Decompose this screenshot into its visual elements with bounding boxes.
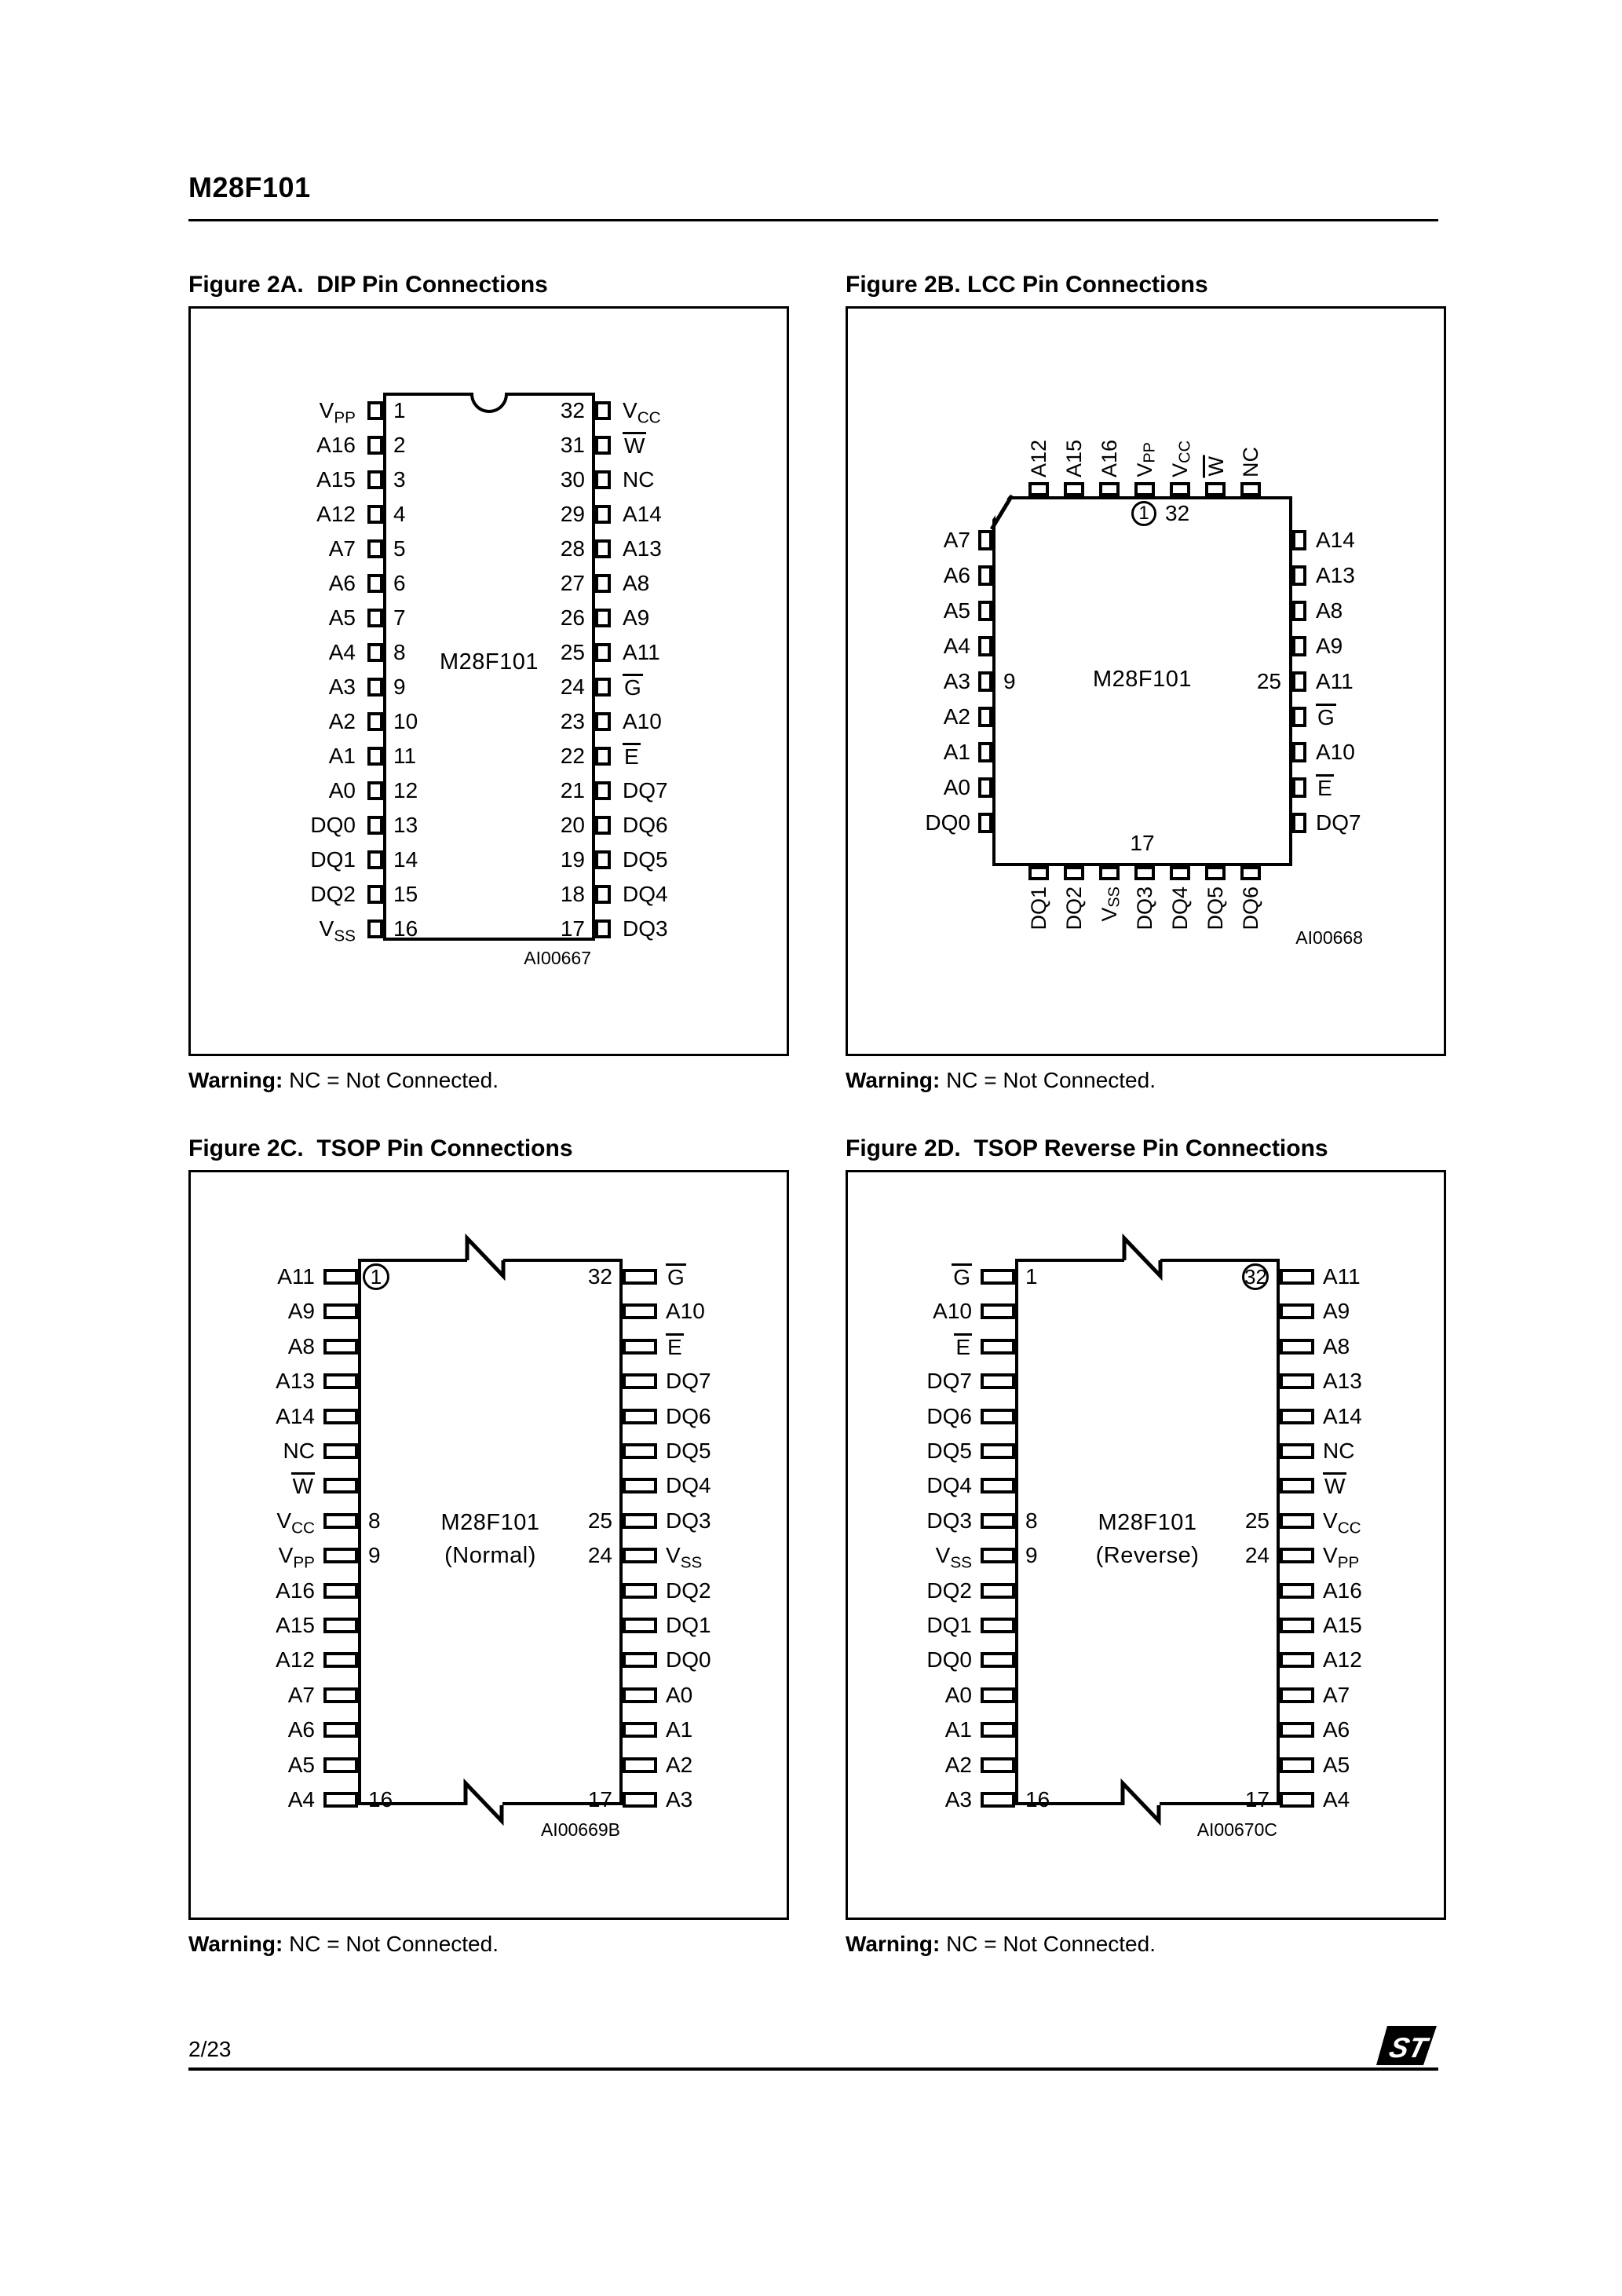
pin-rect [595, 850, 611, 869]
figure-2d-frame: G1A10EDQ7DQ6DQ5DQ4DQ38VSS9DQ2DQ1DQ0A0A1A… [846, 1170, 1446, 1920]
pin-rect [978, 777, 992, 798]
pin-rect [1292, 813, 1306, 833]
pin-number: 6 [393, 570, 406, 597]
pin-label: A10 [623, 708, 662, 735]
pin-label: W [191, 1472, 315, 1499]
pin-label: A11 [1323, 1263, 1361, 1290]
pin-label: DQ5 [1203, 887, 1228, 930]
pin-number: 26 [489, 605, 585, 631]
pin-label: DQ3 [666, 1508, 711, 1534]
pin-label: A7 [191, 1682, 315, 1709]
pin-rect [367, 747, 383, 766]
pin-label: VSS [191, 916, 356, 942]
pin-label: A16 [191, 432, 356, 459]
pin-label: A0 [666, 1682, 692, 1709]
pin-rect [981, 1373, 1015, 1389]
pin-number: 15 [393, 881, 418, 908]
pin-rect [367, 436, 383, 455]
pin-label: DQ6 [848, 1403, 972, 1430]
pin-label: DQ2 [1061, 887, 1087, 930]
pin-label: A15 [191, 1612, 315, 1639]
pin-label: DQ1 [191, 846, 356, 873]
pin-label: A7 [848, 527, 970, 554]
pin-label: A16 [191, 1578, 315, 1604]
pin-label: A7 [1323, 1682, 1350, 1709]
pin-label: A10 [666, 1298, 705, 1325]
pin-label: A6 [848, 562, 970, 589]
pin-rect [978, 601, 992, 621]
pin-label: DQ6 [1238, 887, 1263, 930]
pin-label: A14 [191, 1403, 315, 1430]
datasheet-page: M28F101 Figure 2A. DIP Pin Connections V… [0, 0, 1622, 2296]
pin-label: DQ4 [666, 1472, 711, 1499]
pin-rect [367, 678, 383, 696]
pin-label: DQ6 [623, 812, 668, 839]
warning-note: Warning: NC = Not Connected. [188, 1068, 499, 1093]
pin-rect [367, 712, 383, 731]
break-mark-icon [1115, 1232, 1178, 1295]
pin-rect [323, 1618, 358, 1633]
pin-number: 16 [368, 1786, 393, 1813]
pin-number: 32 [489, 397, 585, 424]
pin-label: VCC [623, 397, 661, 424]
pin-number: 20 [489, 812, 585, 839]
pin-number: 18 [489, 881, 585, 908]
pin-rect [1170, 482, 1190, 496]
pin-label: DQ0 [848, 1647, 972, 1673]
pin-rect [1134, 482, 1155, 496]
pin-label: A4 [191, 639, 356, 666]
pin-rect [367, 609, 383, 627]
pin-label: VPP [191, 397, 356, 424]
pin-rect [1280, 1757, 1314, 1773]
pin-rect [623, 1339, 657, 1355]
pin-label: A5 [191, 605, 356, 631]
pin-rect [323, 1687, 358, 1703]
pin-rect [623, 1269, 657, 1285]
pin-rect [595, 436, 611, 455]
pin-rect [981, 1618, 1015, 1633]
pin-rect [323, 1513, 358, 1529]
pin-rect [595, 781, 611, 800]
pin-rect [1280, 1409, 1314, 1424]
pin-rect [595, 885, 611, 904]
pin-rect [978, 707, 992, 727]
pin-label: DQ4 [848, 1472, 972, 1499]
pin-label: A11 [191, 1263, 315, 1290]
pin-rect [1292, 671, 1306, 692]
pin-label: A12 [191, 501, 356, 528]
pin-rect [595, 712, 611, 731]
pin-rect [1064, 482, 1084, 496]
pin-rect [623, 1618, 657, 1633]
pin-rect [1292, 742, 1306, 762]
pin-rect [981, 1757, 1015, 1773]
pin-rect [1240, 482, 1261, 496]
pin-rect [981, 1478, 1015, 1493]
pin-label: A1 [848, 1717, 972, 1743]
pin-label: A13 [1323, 1368, 1362, 1395]
pin-number: 27 [489, 570, 585, 597]
pin-number: 9 [393, 674, 406, 700]
pin-number: 23 [489, 708, 585, 735]
pin-label: A7 [191, 536, 356, 562]
pin-rect [367, 505, 383, 524]
pin-rect [595, 747, 611, 766]
pin-rect [1134, 866, 1155, 880]
pin-rect [1280, 1443, 1314, 1459]
pin-rect [1099, 866, 1120, 880]
pin-rect [981, 1269, 1015, 1285]
pin-label: DQ0 [848, 810, 970, 836]
pin-label: A3 [666, 1786, 692, 1813]
pin-rect [595, 470, 611, 489]
pin-rect [1280, 1792, 1314, 1808]
figure-2d: Figure 2D. TSOP Reverse Pin Connections … [846, 1135, 1446, 1968]
pin-label: DQ7 [666, 1368, 711, 1395]
pin-label: A8 [1316, 598, 1343, 624]
pin-rect [367, 850, 383, 869]
pin-rect [981, 1513, 1015, 1529]
pin-rect [981, 1792, 1015, 1808]
pin-rect [595, 643, 611, 662]
pin-rect [367, 919, 383, 938]
pin-label: A14 [1316, 527, 1355, 554]
pin-rect [1170, 866, 1190, 880]
pin-number: 32 [534, 1263, 612, 1290]
warning-text: NC = Not Connected. [946, 1932, 1156, 1956]
pin-label: A2 [848, 704, 970, 730]
pin-label: DQ4 [623, 881, 668, 908]
pin-label: NC [1238, 447, 1263, 477]
pin-rect [1280, 1513, 1314, 1529]
pin-rect [323, 1409, 358, 1424]
pin-rect [1205, 482, 1226, 496]
figure-ref-code: AI00667 [434, 948, 591, 968]
pin1-indicator: 1 [363, 1263, 389, 1290]
chip-sublabel: (Reverse) [1015, 1541, 1280, 1570]
pin-rect [323, 1652, 358, 1668]
pin-rect [367, 885, 383, 904]
pin-label: A0 [848, 774, 970, 801]
pin-rect [623, 1548, 657, 1563]
pin-rect [978, 636, 992, 656]
pin-rect [1292, 565, 1306, 586]
figure-2b-frame: A12A15A16VPPVCCWNCDQ1DQ2VSSDQ3DQ4DQ5DQ6A… [846, 306, 1446, 1056]
pin-label: DQ2 [666, 1578, 711, 1604]
page-title: M28F101 [188, 171, 311, 204]
pin-label: A1 [848, 739, 970, 766]
pin-rect [623, 1722, 657, 1738]
pin-number: 31 [489, 432, 585, 459]
lcc-package-diagram: A12A15A16VPPVCCWNCDQ1DQ2VSSDQ3DQ4DQ5DQ6A… [848, 309, 1444, 1054]
pin-label: A0 [191, 777, 356, 804]
pin-label: VPP [1132, 442, 1162, 477]
break-mark-icon [458, 1232, 521, 1295]
pin-rect [981, 1548, 1015, 1563]
pin-rect [978, 813, 992, 833]
pin-label: G [848, 1263, 972, 1290]
pin-rect [323, 1373, 358, 1389]
pin-rect [1280, 1373, 1314, 1389]
figure-2d-title: Figure 2D. TSOP Reverse Pin Connections [846, 1135, 1328, 1162]
pin-label: DQ5 [666, 1438, 711, 1464]
figure-2a-frame: VPP1A162A153A124A75A66A57A48A39A210A111A… [188, 306, 789, 1056]
warning-note: Warning: NC = Not Connected. [846, 1932, 1156, 1957]
warning-text: NC = Not Connected. [946, 1068, 1156, 1092]
pin-rect [1240, 866, 1261, 880]
pin-label: A3 [848, 668, 970, 695]
chip-sublabel: (Normal) [358, 1541, 623, 1570]
pin-number: 30 [489, 466, 585, 493]
pin-label: DQ1 [666, 1612, 711, 1639]
pin-label: DQ1 [1026, 887, 1051, 930]
pin-rect [323, 1443, 358, 1459]
pin-number: 10 [393, 708, 418, 735]
pin-number: 21 [489, 777, 585, 804]
pin-rect [978, 565, 992, 586]
figure-2c-frame: A111A9A8A13A14NCWVCC8VPP9A16A15A12A7A6A5… [188, 1170, 789, 1920]
pin-label: A5 [848, 598, 970, 624]
pin-number: 4 [393, 501, 406, 528]
pin-rect [595, 505, 611, 524]
pin-rect [623, 1373, 657, 1389]
header-rule [188, 219, 1438, 221]
pin-rect [1280, 1583, 1314, 1599]
pin-rect [1028, 866, 1049, 880]
st-logo-icon: ST [1375, 2024, 1438, 2067]
pin-label: W [1203, 455, 1229, 477]
pin-label: G [1316, 704, 1336, 730]
pin-label: VSS [848, 1542, 972, 1569]
pin-label: VPP [1323, 1542, 1359, 1569]
warning-note: Warning: NC = Not Connected. [846, 1068, 1156, 1093]
pin-rect [981, 1652, 1015, 1668]
pin-rect [1028, 482, 1049, 496]
pin-rect [323, 1303, 358, 1319]
pin-number: 13 [393, 812, 418, 839]
pin-label: E [1316, 774, 1334, 801]
pin-rect [623, 1687, 657, 1703]
pin-label: G [623, 674, 643, 700]
pin-label: DQ3 [1132, 887, 1157, 930]
pin-rect [367, 816, 383, 835]
pin-number: 17 [992, 830, 1292, 857]
pin-label: A8 [191, 1333, 315, 1360]
pin-rect [595, 919, 611, 938]
pin-rect [623, 1303, 657, 1319]
pin-rect [323, 1339, 358, 1355]
pin1-indicator: 32 [1242, 1263, 1269, 1290]
pin-rect [1292, 530, 1306, 550]
pin-number: 17 [489, 916, 585, 942]
pin-rect [623, 1583, 657, 1599]
pin-number: 24 [489, 674, 585, 700]
pin-label: E [666, 1333, 684, 1360]
pin-label: NC [623, 466, 654, 493]
pin-number: 19 [489, 846, 585, 873]
pin-rect [981, 1409, 1015, 1424]
pin-rect [323, 1269, 358, 1285]
pin-rect [1280, 1303, 1314, 1319]
pin-label: DQ3 [623, 916, 668, 942]
pin-label: A6 [191, 570, 356, 597]
figure-2a-title: Figure 2A. DIP Pin Connections [188, 272, 548, 298]
pin-label: A3 [191, 674, 356, 700]
pin-rect [1292, 601, 1306, 621]
pin-label: VCC [1323, 1508, 1361, 1534]
pin-label: DQ2 [191, 881, 356, 908]
pin-label: E [623, 743, 641, 770]
warning-label: Warning: [188, 1932, 283, 1956]
pin-rect [981, 1687, 1015, 1703]
pin-rect [981, 1303, 1015, 1319]
figure-2b: Figure 2B. LCC Pin Connections A12A15A16… [846, 272, 1446, 1104]
pin-label: A14 [1323, 1403, 1362, 1430]
pin-label: A8 [1323, 1333, 1350, 1360]
pin-number: 5 [393, 536, 406, 562]
pin-rect [623, 1792, 657, 1808]
pin-label: A12 [1323, 1647, 1362, 1673]
pin-rect [595, 539, 611, 558]
pin-number: 2 [393, 432, 406, 459]
pin-rect [1280, 1687, 1314, 1703]
pin-label: A15 [1323, 1612, 1362, 1639]
warning-note: Warning: NC = Not Connected. [188, 1932, 499, 1957]
pin-rect [623, 1478, 657, 1493]
pin-label: A9 [1323, 1298, 1350, 1325]
pin-label: A4 [848, 633, 970, 660]
pin-rect [981, 1583, 1015, 1599]
pin-rect [623, 1513, 657, 1529]
pin-label: VSS [666, 1542, 702, 1569]
pin-label: A2 [848, 1752, 972, 1779]
warning-label: Warning: [188, 1068, 283, 1092]
pin-label: A16 [1323, 1578, 1362, 1604]
pin-label: A6 [1323, 1717, 1350, 1743]
chip-label: M28F101 [992, 665, 1292, 693]
pin-rect [1280, 1652, 1314, 1668]
pin-rect [367, 643, 383, 662]
pin-label: A11 [1316, 668, 1353, 695]
pin-label: A8 [623, 570, 649, 597]
pin-label: A10 [1316, 739, 1355, 766]
pin-number: 32 [1165, 500, 1189, 527]
pin-label: DQ6 [666, 1403, 711, 1430]
pin-rect [323, 1722, 358, 1738]
pin-label: A15 [1061, 440, 1087, 477]
figure-2c-title: Figure 2C. TSOP Pin Connections [188, 1135, 573, 1162]
dip-package-diagram: VPP1A162A153A124A75A66A57A48A39A210A111A… [191, 309, 787, 1054]
pin-label: A6 [191, 1717, 315, 1743]
page-number: 2/23 [188, 2037, 232, 2062]
figure-2a: Figure 2A. DIP Pin Connections VPP1A162A… [188, 272, 789, 1104]
pin-number: 28 [489, 536, 585, 562]
pin-label: A13 [623, 536, 662, 562]
pin-label: VCC [191, 1508, 315, 1534]
pin-rect [1280, 1722, 1314, 1738]
lcc-chamfer-corner [985, 488, 1041, 545]
pin1-indicator: 1 [1131, 501, 1156, 526]
pin-label: VCC [1167, 441, 1197, 477]
pin-rect [323, 1792, 358, 1808]
pin-rect [367, 574, 383, 593]
figure-2c: Figure 2C. TSOP Pin Connections A111A9A8… [188, 1135, 789, 1968]
pin-label: A4 [1323, 1786, 1350, 1813]
pin-label: DQ0 [666, 1647, 711, 1673]
pin-rect [981, 1722, 1015, 1738]
pin-label: DQ7 [623, 777, 668, 804]
pin-label: VPP [191, 1542, 315, 1569]
pin-label: A11 [623, 639, 660, 666]
pin-rect [978, 742, 992, 762]
pin-label: DQ3 [848, 1508, 972, 1534]
pin-rect [367, 470, 383, 489]
pin-label: A13 [191, 1368, 315, 1395]
pin-label: DQ2 [848, 1578, 972, 1604]
pin-rect [1280, 1618, 1314, 1633]
pin-label: A5 [191, 1752, 315, 1779]
pin-label: A0 [848, 1682, 972, 1709]
pin-rect [1280, 1478, 1314, 1493]
pin-rect [623, 1652, 657, 1668]
pin-label: A4 [191, 1786, 315, 1813]
pin-rect [323, 1583, 358, 1599]
pin-rect [981, 1339, 1015, 1355]
pin-number: 17 [1191, 1786, 1269, 1813]
tsop-package-diagram: A111A9A8A13A14NCWVCC8VPP9A16A15A12A7A6A5… [191, 1172, 787, 1918]
pin-label: A2 [191, 708, 356, 735]
pin-rect [595, 609, 611, 627]
figure-ref-code: AI00669B [463, 1819, 620, 1840]
pin-number: 1 [393, 397, 406, 424]
pin-rect [323, 1548, 358, 1563]
pin-label: A13 [1316, 562, 1355, 589]
pin-rect [367, 401, 383, 420]
chip-label: M28F101 [383, 648, 595, 676]
warning-text: NC = Not Connected. [289, 1932, 499, 1956]
pin-label: G [666, 1263, 686, 1290]
figure-ref-code: AI00670C [1120, 1819, 1277, 1840]
pin-rect [1292, 707, 1306, 727]
pin-rect [623, 1443, 657, 1459]
pin-rect [978, 671, 992, 692]
pin-rect [1280, 1339, 1314, 1355]
tsop-reverse-package-diagram: G1A10EDQ7DQ6DQ5DQ4DQ38VSS9DQ2DQ1DQ0A0A1A… [848, 1172, 1444, 1918]
pin-number: 29 [489, 501, 585, 528]
pin-rect [595, 401, 611, 420]
pin-rect [1280, 1269, 1314, 1285]
pin-rect [1280, 1548, 1314, 1563]
pin-rect [595, 816, 611, 835]
pin-rect [595, 678, 611, 696]
pin-label: DQ7 [848, 1368, 972, 1395]
pin-label: DQ7 [1316, 810, 1361, 836]
chip-label: M28F101 [358, 1508, 623, 1537]
footer-rule [188, 2067, 1438, 2071]
pin-rect [1205, 866, 1226, 880]
pin-label: A12 [1026, 440, 1051, 477]
figure-ref-code: AI00668 [1206, 927, 1363, 948]
pin-rect [1292, 777, 1306, 798]
pin-rect [1064, 866, 1084, 880]
pin-rect [1292, 636, 1306, 656]
pin-label: DQ5 [623, 846, 668, 873]
pin-label: A15 [191, 466, 356, 493]
pin-label: A3 [848, 1786, 972, 1813]
pin-number: 11 [393, 743, 416, 770]
pin-rect [623, 1409, 657, 1424]
